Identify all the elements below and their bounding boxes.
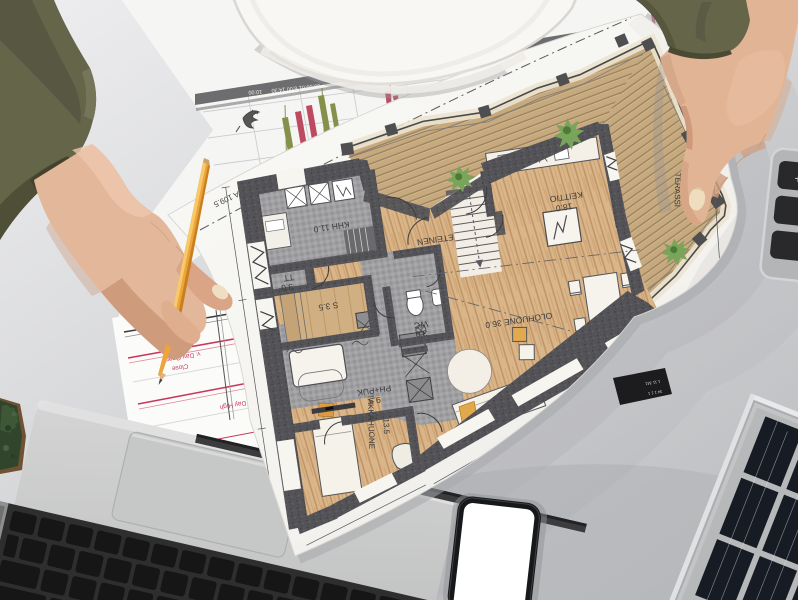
svg-text:10:00: 10:00 (248, 88, 262, 95)
svg-text:TAKKAHUONE: TAKKAHUONE (366, 394, 376, 449)
svg-text:3.0: 3.0 (280, 281, 293, 293)
svg-text:13.5: 13.5 (382, 418, 391, 434)
svg-text:3.0: 3.0 (415, 328, 428, 340)
